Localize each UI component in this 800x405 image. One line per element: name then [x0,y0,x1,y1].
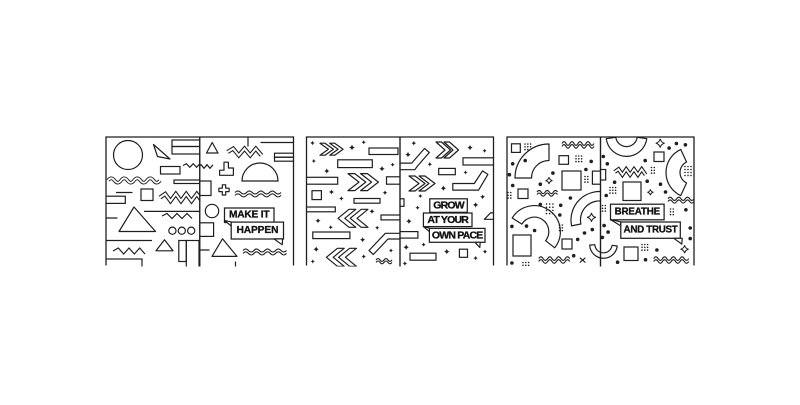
svg-text:BREATHE: BREATHE [615,207,661,218]
svg-text:AND TRUST: AND TRUST [624,225,678,236]
svg-text:OWN PACE: OWN PACE [432,229,483,241]
svg-text:AT YOUR: AT YOUR [427,214,469,226]
svg-text:MAKE IT: MAKE IT [229,210,270,221]
svg-text:GROW: GROW [433,200,465,212]
svg-text:HAPPEN: HAPPEN [236,225,278,236]
